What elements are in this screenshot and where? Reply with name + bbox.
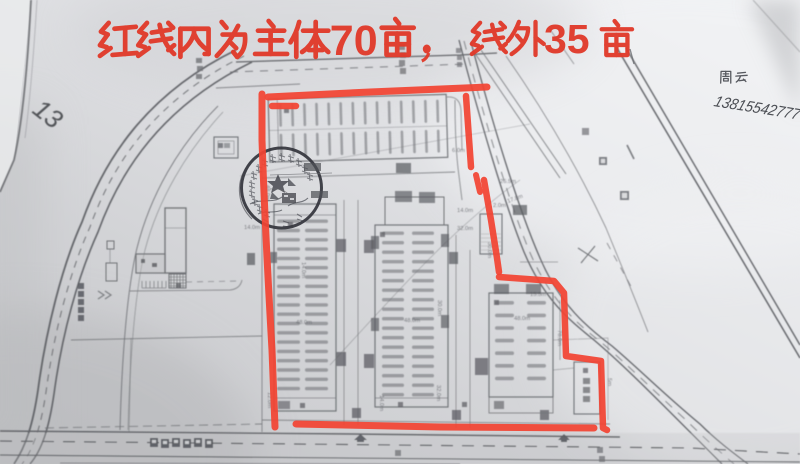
svg-text:5m: 5m [606, 378, 612, 386]
svg-text:30.0m: 30.0m [436, 300, 442, 316]
svg-text:48.0m: 48.0m [514, 316, 530, 322]
svg-text:14.0m: 14.0m [457, 208, 473, 214]
svg-text:48.0m: 48.0m [404, 318, 420, 324]
svg-text:35: 35 [544, 16, 590, 62]
svg-text:32.0m: 32.0m [457, 226, 473, 232]
svg-text:70: 70 [330, 17, 378, 65]
svg-text:32.0m: 32.0m [435, 385, 441, 401]
svg-text:15.5m: 15.5m [530, 292, 546, 298]
svg-text:2.0m: 2.0m [493, 203, 506, 209]
svg-text:6.0m: 6.0m [452, 148, 465, 154]
svg-text:48.0m: 48.0m [296, 320, 312, 326]
svg-text:30.0m: 30.0m [486, 242, 492, 258]
svg-text:14.0m: 14.0m [300, 262, 306, 278]
svg-text:14.0m: 14.0m [378, 395, 384, 411]
svg-text:14.0m: 14.0m [244, 225, 260, 231]
svg-text:26.5m: 26.5m [500, 179, 516, 185]
svg-text:78.0m: 78.0m [556, 330, 562, 346]
